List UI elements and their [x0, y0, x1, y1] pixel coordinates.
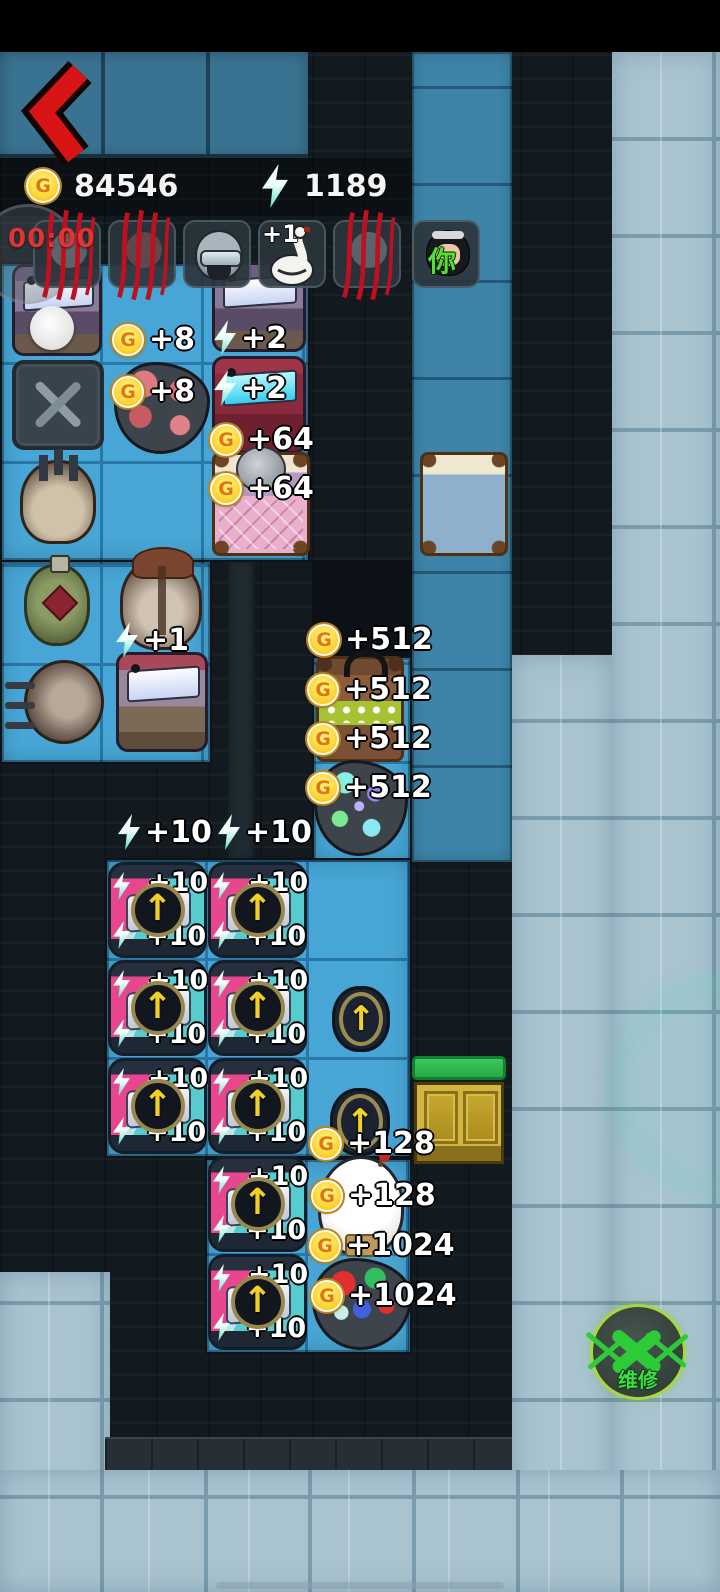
- energy-icon: [113, 1117, 130, 1145]
- energy-reward-label: +2: [214, 320, 287, 356]
- helmet-avatar-icon: [195, 230, 243, 280]
- coin-icon: G: [307, 772, 339, 804]
- energy-icon: [116, 622, 138, 658]
- coin-icon: G: [311, 1180, 343, 1212]
- energy-icon: [213, 1166, 230, 1194]
- reward-value: +64: [247, 471, 314, 506]
- corridor-floor-bottom: [0, 1470, 720, 1592]
- home-indicator[interactable]: [216, 1582, 504, 1589]
- coin-amount: 84546: [74, 169, 224, 204]
- energy-icon: [213, 872, 230, 900]
- coin-reward-label: G+64: [210, 422, 314, 457]
- bed-blue[interactable]: [420, 452, 508, 556]
- reward-value: +512: [344, 672, 432, 707]
- goose-bonus-label: +1: [262, 220, 299, 248]
- reward-value: +128: [347, 1126, 435, 1161]
- energy-icon: [113, 970, 130, 998]
- coin-reward-label: G+512: [307, 721, 432, 756]
- coin-reward-label: G+1024: [311, 1278, 457, 1313]
- energy-icon: [218, 814, 240, 850]
- reward-value: +512: [344, 721, 432, 756]
- reward-value: +8: [149, 322, 195, 357]
- claw-marks-icon: [331, 208, 407, 302]
- reward-value: +1024: [348, 1278, 457, 1313]
- repair-label: 维修: [593, 1364, 683, 1393]
- upgrade-chest[interactable]: +10+10↑: [208, 960, 307, 1056]
- energy-amount: 1189: [304, 169, 388, 204]
- energy-icon: [213, 970, 230, 998]
- coin-reward-label: G+128: [311, 1178, 436, 1213]
- coin-reward-label: G+64: [210, 471, 314, 506]
- wall-bottom-edge: [105, 1437, 512, 1470]
- avatar-slot-2[interactable]: [108, 220, 176, 288]
- potion[interactable]: [24, 564, 90, 646]
- coin-reward-label: G+8: [112, 322, 195, 357]
- upgrade-chest[interactable]: +10+10↑: [208, 1254, 307, 1350]
- energy-reward-label: +10: [118, 814, 212, 850]
- timer: 00:00: [8, 224, 96, 254]
- coin-reward-label: G+512: [308, 622, 433, 657]
- energy-icon: [262, 164, 288, 208]
- reward-value: +512: [344, 770, 432, 805]
- upgrade-token[interactable]: ↑: [332, 986, 390, 1052]
- energy-icon: [213, 921, 230, 949]
- reward-value: +64: [247, 422, 314, 457]
- upgrade-arrow-icon: ↑: [131, 1079, 185, 1133]
- energy-icon: [113, 1068, 130, 1096]
- reward-value: +1024: [346, 1228, 455, 1263]
- avatar-slot-5[interactable]: [333, 220, 401, 288]
- toolbox[interactable]: [12, 360, 104, 450]
- avatar-slot-4[interactable]: +1: [258, 220, 326, 288]
- reward-value: +128: [348, 1178, 436, 1213]
- you-label: 你: [428, 240, 456, 280]
- coin-icon: G: [210, 473, 242, 505]
- energy-icon: [113, 872, 130, 900]
- upgrade-chest[interactable]: +10+10↑: [208, 1156, 307, 1252]
- coin-icon: G: [308, 624, 340, 656]
- upgrade-chest[interactable]: +10+10↑: [208, 862, 307, 958]
- reward-value: +1: [143, 623, 189, 658]
- upgrade-arrow-icon: ↑: [131, 981, 185, 1035]
- upgrade-arrow-icon: ↑: [231, 1079, 285, 1133]
- energy-icon: [213, 1117, 230, 1145]
- back-button[interactable]: [20, 60, 100, 168]
- energy-reward-label: +10: [218, 814, 312, 850]
- upgrade-arrow-icon: ↑: [231, 883, 285, 937]
- reward-value: +512: [345, 622, 433, 657]
- energy-reward-label: +2: [214, 370, 287, 406]
- reward-value: +2: [241, 371, 287, 406]
- upgrade-arrow-icon: ↑: [131, 883, 185, 937]
- energy-icon: [113, 921, 130, 949]
- energy-icon: [214, 320, 236, 356]
- corridor-floor-mid: [512, 655, 612, 1592]
- white-token[interactable]: [30, 306, 74, 350]
- coin-reward-label: G+128: [310, 1126, 435, 1161]
- upgrade-chest[interactable]: +10+10↑: [208, 1058, 307, 1154]
- door-health-bar[interactable]: [412, 1056, 506, 1080]
- coin-reward-label: G+512: [307, 672, 432, 707]
- reward-value: +8: [149, 374, 195, 409]
- energy-icon: [213, 1019, 230, 1047]
- energy-icon: [213, 1264, 230, 1292]
- coin-reward-label: G+1024: [309, 1228, 455, 1263]
- coin-reward-label: G+512: [307, 770, 432, 805]
- game-stage: G 84546 1189 00:00: [0, 0, 720, 1592]
- energy-icon: [113, 1019, 130, 1047]
- helmet[interactable]: [20, 460, 96, 544]
- avatar-slot-3[interactable]: [183, 220, 251, 288]
- coin-reward-label: G+8: [112, 374, 195, 409]
- upgrade-arrow-icon: ↑: [231, 981, 285, 1035]
- upgrade-arrow-icon: ↑: [231, 1177, 285, 1231]
- reward-value: +2: [241, 321, 287, 356]
- energy-icon: [214, 370, 236, 406]
- status-bar: [0, 0, 720, 52]
- upgrade-arrow-icon: ↑: [231, 1275, 285, 1329]
- coin-icon: G: [310, 1128, 342, 1160]
- energy-icon: [213, 1215, 230, 1243]
- coin-icon: G: [26, 169, 60, 203]
- upgrade-chest[interactable]: +10+10↑: [108, 1058, 207, 1154]
- coin-icon: G: [210, 424, 242, 456]
- energy-icon: [213, 1313, 230, 1341]
- arcade-machine-redtop[interactable]: [116, 652, 208, 752]
- claw-marks-icon: [31, 208, 107, 302]
- repair-button[interactable]: 维修: [590, 1304, 686, 1400]
- hairband: [432, 231, 464, 239]
- coin-icon: G: [112, 376, 144, 408]
- energy-reward-label: +1: [116, 622, 189, 658]
- coin-icon: G: [307, 723, 339, 755]
- energy-icon: [118, 814, 140, 850]
- coin-icon: G: [112, 324, 144, 356]
- coin-icon: G: [311, 1280, 343, 1312]
- reward-value: +10: [245, 815, 312, 850]
- upgrade-chest[interactable]: +10+10↑: [108, 862, 207, 958]
- claw-marks-icon: [106, 208, 182, 302]
- coin-icon: G: [307, 674, 339, 706]
- mine[interactable]: [24, 660, 104, 744]
- upgrade-chest[interactable]: +10+10↑: [108, 960, 207, 1056]
- reward-value: +10: [145, 815, 212, 850]
- back-chevron-icon: [20, 60, 100, 168]
- coin-icon: G: [309, 1230, 341, 1262]
- avatar-slot-you[interactable]: 你: [412, 220, 480, 288]
- energy-icon: [213, 1068, 230, 1096]
